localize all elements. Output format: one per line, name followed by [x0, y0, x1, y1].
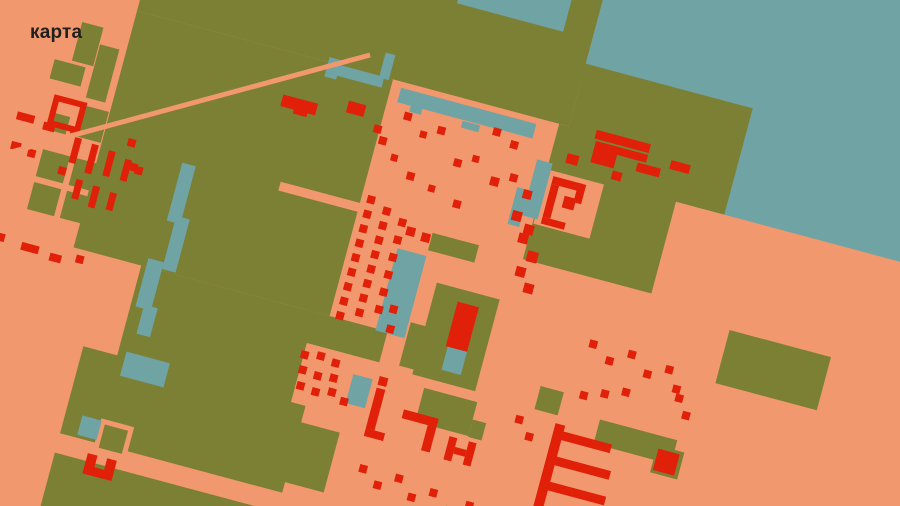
map-view[interactable]: карта: [0, 0, 900, 506]
map-title: карта: [30, 22, 82, 44]
map-canvas[interactable]: [0, 0, 900, 506]
